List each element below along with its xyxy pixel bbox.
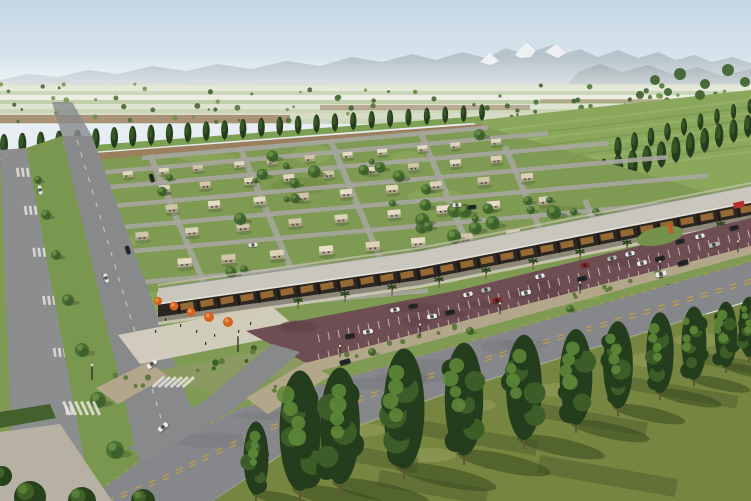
aerial-render-stage: Aerial rendering of a master-planned des… xyxy=(0,0,751,501)
aerial-image xyxy=(0,0,751,501)
